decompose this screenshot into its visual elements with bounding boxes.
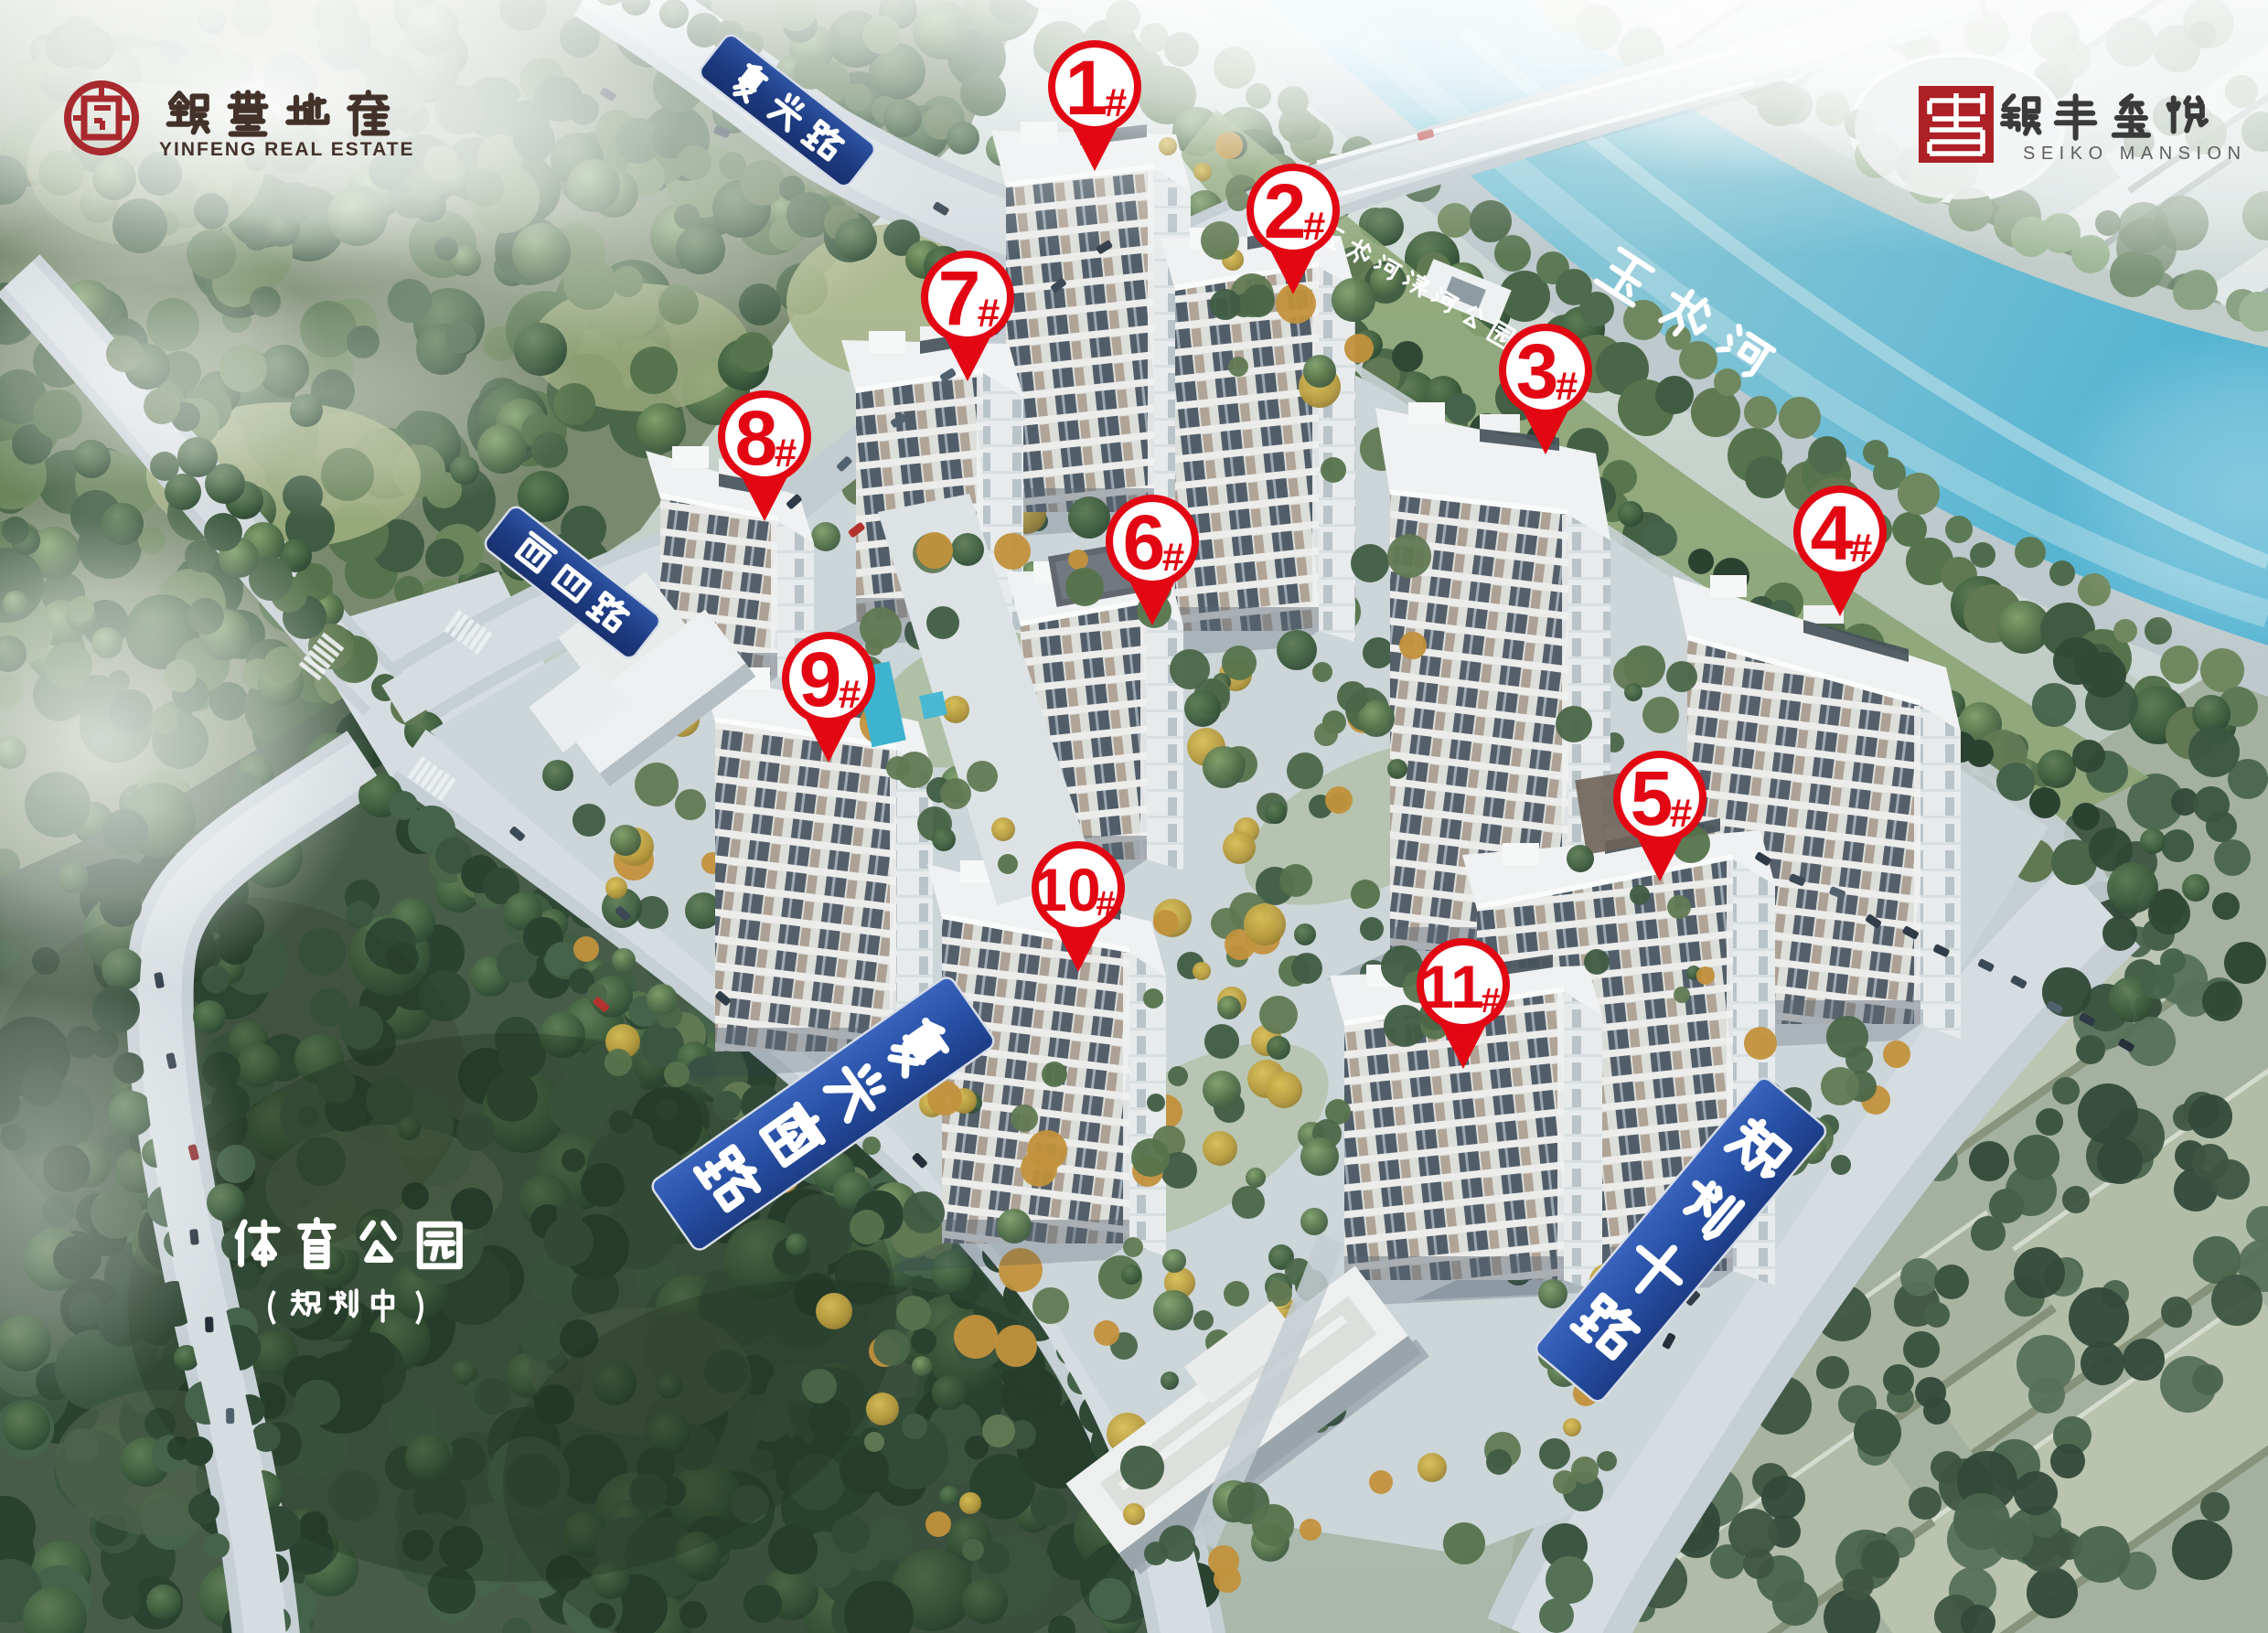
svg-text:#: # <box>1481 982 1500 1020</box>
svg-text:#: # <box>1850 526 1872 571</box>
svg-text:#: # <box>1303 204 1325 249</box>
svg-text:6: 6 <box>1123 499 1166 585</box>
svg-text:9: 9 <box>799 636 842 722</box>
svg-text:1: 1 <box>1065 45 1108 131</box>
svg-text:#: # <box>1105 80 1127 125</box>
svg-text:#: # <box>1670 791 1692 836</box>
svg-text:5: 5 <box>1631 755 1674 841</box>
svg-text:7: 7 <box>938 255 981 341</box>
svg-text:#: # <box>1096 885 1115 923</box>
svg-text:YINFENG REAL ESTATE: YINFENG REAL ESTATE <box>159 139 415 160</box>
svg-text:#: # <box>978 291 1000 336</box>
svg-text:2: 2 <box>1264 168 1307 254</box>
svg-text:3: 3 <box>1516 328 1559 414</box>
svg-text:#: # <box>775 431 797 475</box>
svg-text:#: # <box>839 672 861 717</box>
svg-text:10: 10 <box>1033 856 1100 923</box>
svg-text:11: 11 <box>1420 953 1484 1020</box>
svg-text:#: # <box>1162 535 1184 580</box>
svg-text:8: 8 <box>735 395 778 481</box>
svg-text:#: # <box>1556 364 1578 409</box>
svg-text:SEIKO MANSION: SEIKO MANSION <box>2023 144 2247 164</box>
svg-text:4: 4 <box>1811 490 1854 576</box>
